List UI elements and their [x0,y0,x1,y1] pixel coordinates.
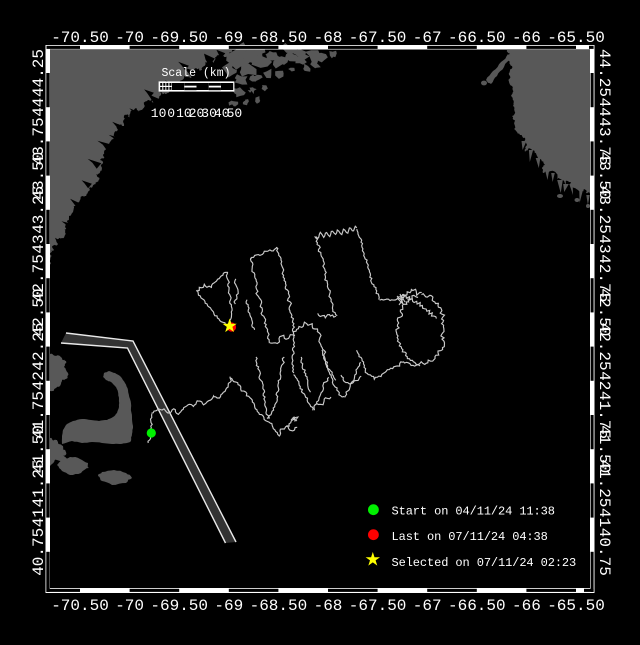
svg-text:-66.50: -66.50 [448,29,506,47]
svg-text:-69.50: -69.50 [150,597,208,615]
svg-text:-70: -70 [115,29,144,47]
svg-text:40.75: 40.75 [595,528,613,576]
svg-text:-67: -67 [413,29,442,47]
svg-text:-68.50: -68.50 [250,29,308,47]
svg-text:44.25: 44.25 [30,49,48,97]
svg-text:-70.50: -70.50 [51,29,109,47]
svg-text:41: 41 [30,508,48,527]
svg-text:-66: -66 [512,29,541,47]
svg-text:42.25: 42.25 [595,323,613,371]
svg-text:-69: -69 [214,29,243,47]
svg-text:44.25: 44.25 [595,49,613,97]
svg-text:41: 41 [595,508,613,527]
svg-text:Last on 07/11/24 04:38: Last on 07/11/24 04:38 [392,530,548,544]
svg-text:50: 50 [227,106,243,121]
svg-text:-65.50: -65.50 [547,597,605,615]
svg-text:-66.50: -66.50 [448,597,506,615]
svg-text:-66: -66 [512,597,541,615]
svg-text:Scale (km): Scale (km) [161,67,230,80]
svg-text:44: 44 [595,98,613,117]
svg-text:43.25: 43.25 [595,186,613,234]
svg-text:-70: -70 [115,597,144,615]
svg-text:-69.50: -69.50 [150,29,208,47]
svg-text:41.25: 41.25 [595,459,613,507]
svg-text:Start on 04/11/24 11:38: Start on 04/11/24 11:38 [392,505,555,519]
svg-text:44: 44 [30,98,48,117]
svg-text:40.75: 40.75 [30,528,48,576]
svg-text:42.25: 42.25 [30,323,48,371]
svg-text:-67.50: -67.50 [349,29,407,47]
svg-text:43: 43 [595,234,613,253]
svg-text:Selected on 07/11/24 02:23: Selected on 07/11/24 02:23 [392,556,577,570]
svg-text:10: 10 [151,106,167,121]
svg-text:-68: -68 [314,597,343,615]
svg-text:43.25: 43.25 [30,186,48,234]
svg-text:0: 0 [167,106,175,121]
svg-text:-67.50: -67.50 [349,597,407,615]
svg-text:42: 42 [595,371,613,390]
svg-text:-65.50: -65.50 [547,29,605,47]
svg-text:-70.50: -70.50 [51,597,109,615]
svg-text:42: 42 [30,371,48,390]
svg-text:-68: -68 [314,29,343,47]
svg-text:-67: -67 [413,597,442,615]
svg-text:41.25: 41.25 [30,459,48,507]
svg-text:-68.50: -68.50 [250,597,308,615]
svg-text:43: 43 [30,234,48,253]
svg-text:-69: -69 [214,597,243,615]
